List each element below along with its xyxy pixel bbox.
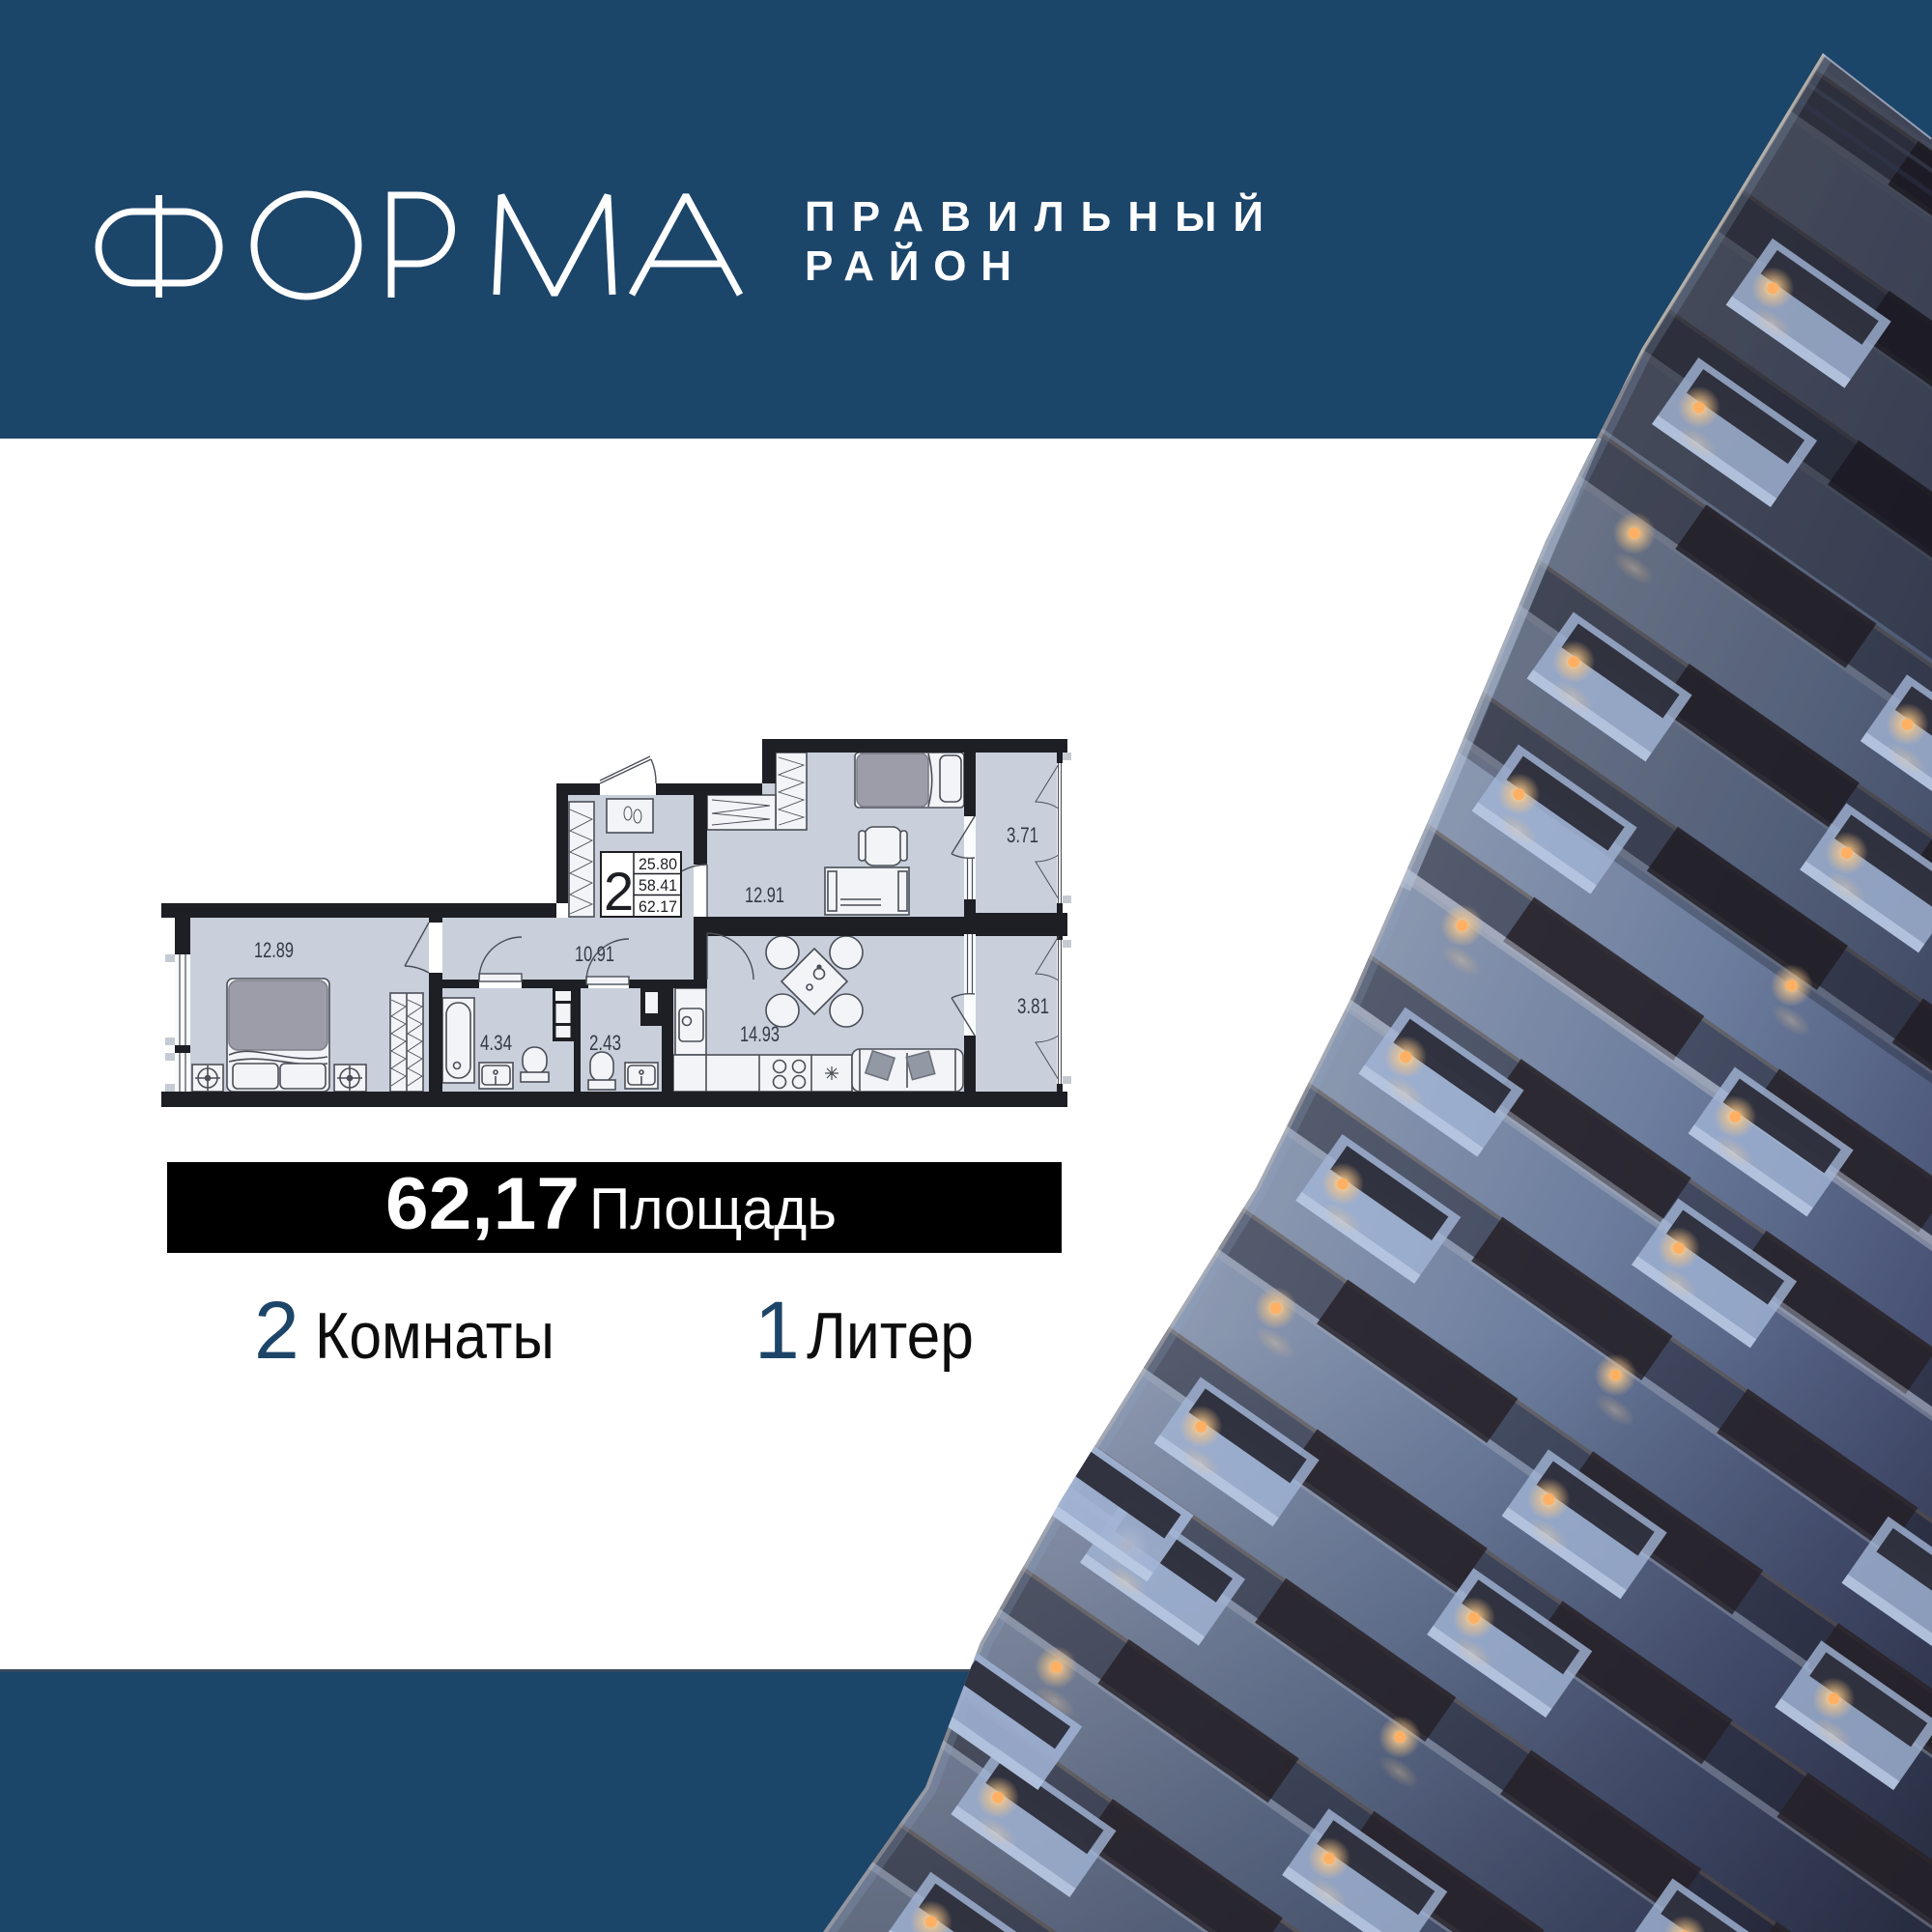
svg-text:10.91: 10.91 [575, 942, 614, 966]
svg-text:Площадь: Площадь [589, 1177, 837, 1241]
svg-text:14.93: 14.93 [740, 1022, 780, 1046]
svg-text:1: 1 [754, 1285, 800, 1376]
svg-text:2.43: 2.43 [589, 1031, 621, 1055]
svg-text:Литер: Литер [807, 1299, 974, 1373]
svg-text:2: 2 [604, 861, 634, 922]
svg-text:25.80: 25.80 [639, 855, 677, 873]
svg-text:58.41: 58.41 [639, 876, 677, 895]
svg-text:12.91: 12.91 [745, 883, 784, 907]
svg-text:3.71: 3.71 [1007, 823, 1038, 847]
svg-text:3.81: 3.81 [1017, 994, 1049, 1018]
svg-text:ПРАВИЛЬНЫЙ: ПРАВИЛЬНЫЙ [805, 191, 1264, 241]
svg-text:4.34: 4.34 [480, 1031, 512, 1055]
svg-text:Комнаты: Комнаты [315, 1299, 554, 1373]
svg-text:12.89: 12.89 [254, 938, 294, 962]
svg-text:62,17: 62,17 [385, 1163, 580, 1245]
svg-text:62.17: 62.17 [639, 897, 677, 916]
svg-text:2: 2 [254, 1285, 299, 1376]
